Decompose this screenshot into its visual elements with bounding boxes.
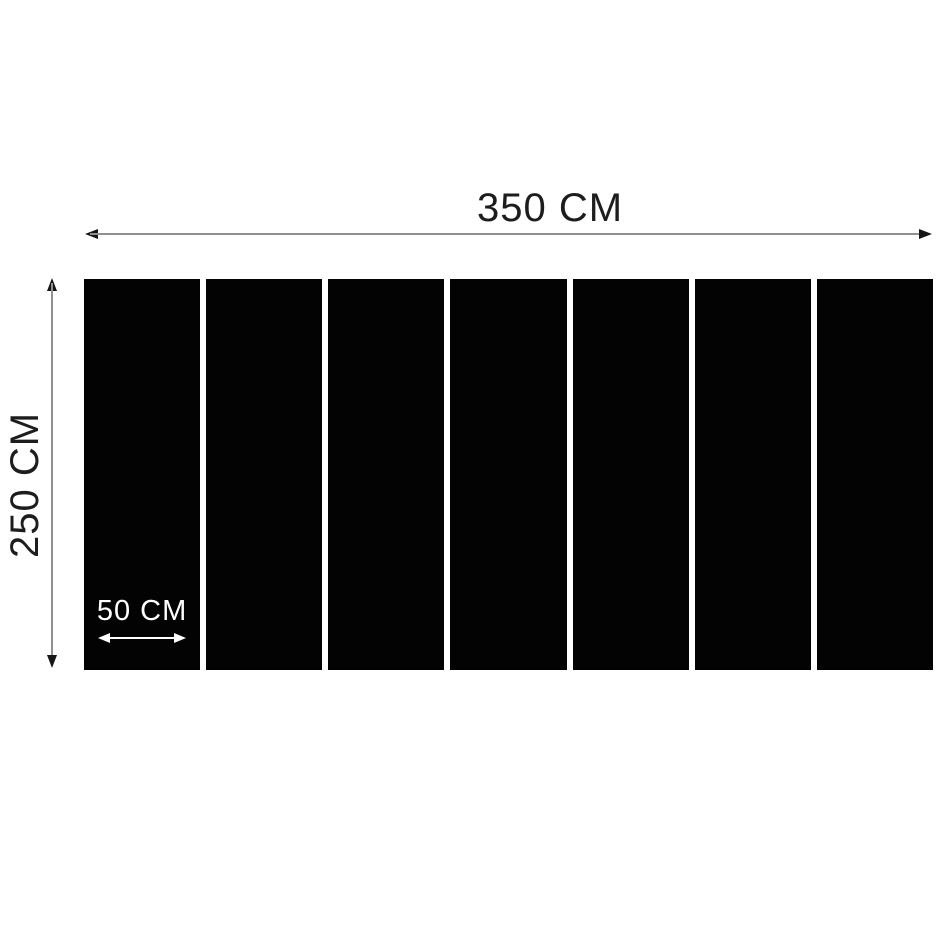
panel-group: 50 CM <box>84 279 933 670</box>
width-dimension-arrow <box>85 224 932 244</box>
panel <box>695 279 811 670</box>
panel <box>573 279 689 670</box>
arrowhead-down-icon <box>47 655 57 668</box>
panel-width-arrow <box>98 630 186 646</box>
panel: 50 CM <box>84 279 200 670</box>
panel <box>817 279 933 670</box>
height-dimension-arrow <box>42 278 62 668</box>
panel <box>328 279 444 670</box>
width-dimension-label: 350 CM <box>440 188 660 228</box>
dimension-line <box>90 233 927 235</box>
panel <box>450 279 566 670</box>
panel-width-label: 50 CM <box>84 597 200 626</box>
dimension-diagram: 350 CM 250 CM 50 CM <box>0 0 940 940</box>
dimension-line <box>102 637 182 639</box>
height-dimension-label: 250 CM <box>3 385 47 585</box>
arrowhead-right-icon <box>174 633 186 643</box>
panel <box>206 279 322 670</box>
panel-width-dimension: 50 CM <box>84 597 200 646</box>
arrowhead-right-icon <box>919 229 932 239</box>
dimension-line <box>51 283 53 663</box>
